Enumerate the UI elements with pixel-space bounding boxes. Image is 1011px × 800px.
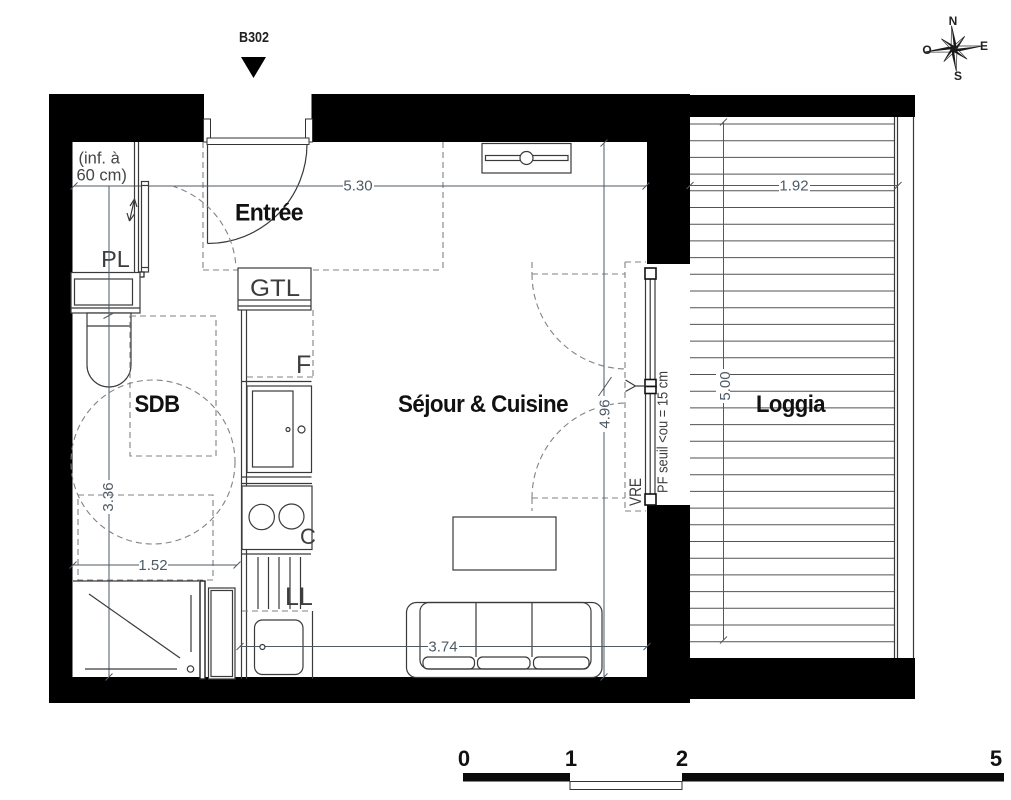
svg-text:1: 1	[565, 746, 577, 771]
svg-text:VRE: VRE	[626, 478, 645, 506]
svg-text:0: 0	[458, 746, 470, 771]
svg-text:S: S	[954, 69, 962, 83]
svg-text:3.74: 3.74	[428, 639, 457, 656]
svg-text:O: O	[922, 43, 931, 57]
svg-text:3.36: 3.36	[100, 482, 117, 511]
svg-text:PL: PL	[101, 246, 130, 272]
svg-text:1.52: 1.52	[138, 557, 167, 574]
svg-text:LL: LL	[285, 583, 313, 611]
svg-text:C: C	[300, 524, 316, 549]
svg-text:GTL: GTL	[250, 275, 300, 302]
svg-text:SDB: SDB	[135, 391, 180, 418]
svg-text:E: E	[980, 39, 988, 53]
svg-text:B302: B302	[239, 29, 269, 46]
svg-text:4.96: 4.96	[597, 399, 614, 428]
svg-text:(inf. à: (inf. à	[79, 150, 121, 168]
svg-text:Séjour & Cuisine: Séjour & Cuisine	[398, 391, 568, 418]
svg-text:5.00: 5.00	[717, 371, 734, 400]
svg-text:60 cm): 60 cm)	[77, 167, 127, 185]
svg-text:F: F	[296, 351, 311, 379]
svg-text:Loggia: Loggia	[756, 391, 826, 418]
svg-text:2: 2	[676, 746, 688, 771]
svg-text:1.92: 1.92	[779, 178, 808, 195]
svg-text:N: N	[949, 14, 958, 28]
svg-text:Entrée: Entrée	[235, 200, 303, 227]
svg-text:5: 5	[990, 746, 1002, 771]
svg-text:5.30: 5.30	[343, 178, 372, 195]
svg-text:PF seuil <ou = 15 cm: PF seuil <ou = 15 cm	[655, 371, 672, 493]
